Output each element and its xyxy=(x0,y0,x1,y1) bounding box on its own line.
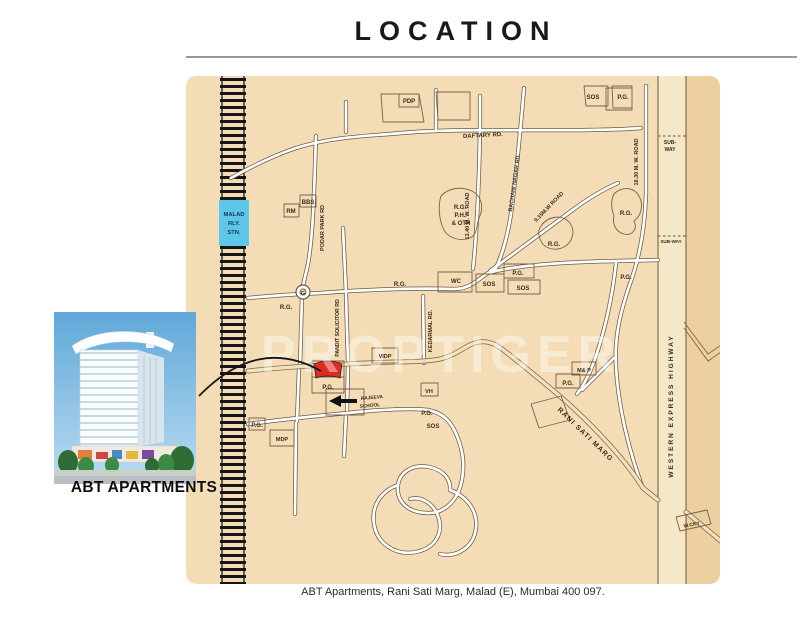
map-label: VIDP xyxy=(379,354,392,360)
building-name: ABT APARTMENTS xyxy=(44,479,244,497)
map-label: P.G. xyxy=(617,95,629,101)
map-label: R.G. xyxy=(280,305,293,311)
map-label: VH xyxy=(425,389,433,395)
map-label: P.G. xyxy=(322,385,334,391)
map-label: 18.30 M. W. ROAD xyxy=(634,138,640,185)
map-label: P.G. xyxy=(421,411,433,417)
map-label: SOS xyxy=(587,95,600,101)
map-label: WAY xyxy=(665,147,677,153)
map-label: P.G. xyxy=(620,275,632,281)
location-map: PROPTIGER PDPSOSP.G.DAFTARY RD.SUB-WAYMA… xyxy=(186,76,720,584)
map-label: BBS xyxy=(302,200,315,206)
map-label: 13.40 M. W. ROAD xyxy=(465,192,471,239)
map-label: SOS xyxy=(483,282,496,288)
map-label: P.G. xyxy=(512,271,524,277)
watermark: PROPTIGER xyxy=(261,326,621,384)
map-label: G xyxy=(301,291,305,297)
railway-track xyxy=(220,76,246,584)
map-label: SOS xyxy=(427,424,440,430)
map-label: SUB-WAY xyxy=(660,239,681,244)
map-label: PDP xyxy=(403,99,415,105)
map-label: PANDIT SOLICITOR RD xyxy=(335,299,341,357)
map-label: STN. xyxy=(227,230,241,236)
page-title: LOCATION xyxy=(186,16,726,47)
map-label: R.G. xyxy=(620,211,633,217)
map-label: PODAR PARK RD xyxy=(320,205,326,251)
map-label: WESTERN EXPRESS HIGHWAY xyxy=(668,334,675,477)
map-land-east xyxy=(686,76,720,584)
map-label: RLY. xyxy=(228,221,240,227)
map-label: MALAD xyxy=(224,212,245,218)
map-label: WC xyxy=(451,279,462,285)
map-label: P.G. xyxy=(251,423,263,429)
address-caption: ABT Apartments, Rani Sati Marg, Malad (E… xyxy=(186,586,720,598)
map-label: RM xyxy=(286,209,295,215)
title-underline xyxy=(186,56,797,58)
map-label: MDP xyxy=(276,437,289,443)
map-label: KEDARMAL RD. xyxy=(428,309,434,352)
location-flyer: LOCATION xyxy=(0,0,800,633)
map-label: R.G. xyxy=(548,242,561,248)
map-label: P.G. xyxy=(562,381,574,387)
building-photo xyxy=(54,312,196,484)
map-label: M& P xyxy=(577,368,591,374)
map-label: R.G. xyxy=(394,282,407,288)
map-label: SUB- xyxy=(664,140,677,146)
map-canvas: PROPTIGER PDPSOSP.G.DAFTARY RD.SUB-WAYMA… xyxy=(186,76,720,584)
map-label: SOS xyxy=(517,286,530,292)
